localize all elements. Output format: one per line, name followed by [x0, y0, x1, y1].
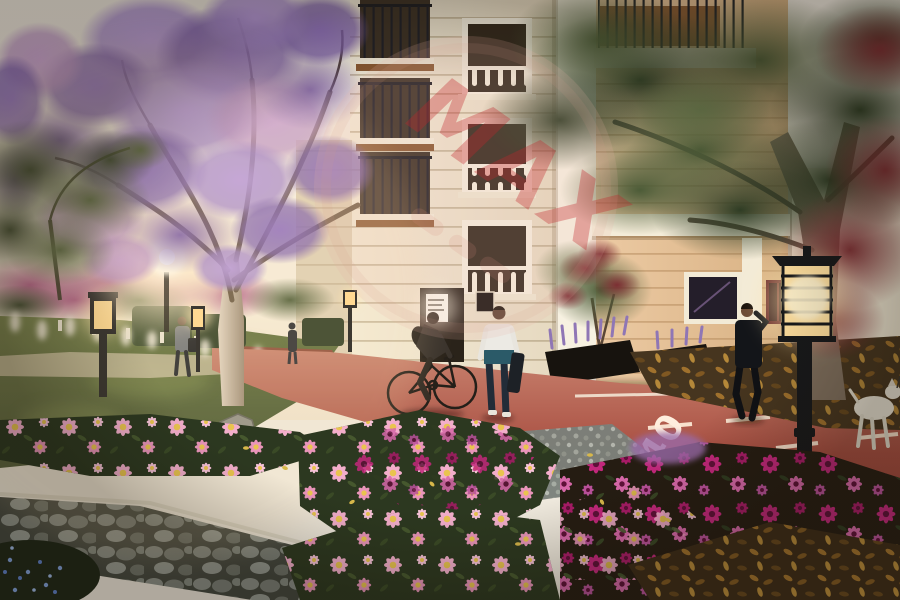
render-image: 40	[0, 0, 900, 600]
